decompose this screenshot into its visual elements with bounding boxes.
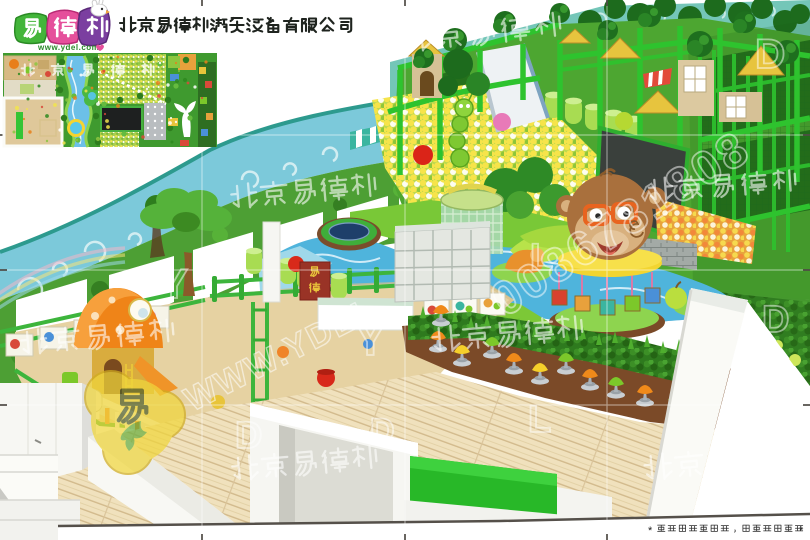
svg-text:D: D xyxy=(755,30,785,77)
svg-text:www.ydel.com: www.ydel.com xyxy=(37,43,99,52)
svg-text:*: * xyxy=(648,525,653,537)
svg-text:L: L xyxy=(528,399,551,441)
svg-text:D: D xyxy=(370,412,395,450)
svg-text:*: * xyxy=(799,525,804,537)
svg-text:Y: Y xyxy=(160,260,188,307)
svg-text:D: D xyxy=(762,299,789,341)
svg-text:L: L xyxy=(530,237,553,279)
svg-text:Y: Y xyxy=(355,313,386,365)
svg-text:D: D xyxy=(235,415,262,457)
